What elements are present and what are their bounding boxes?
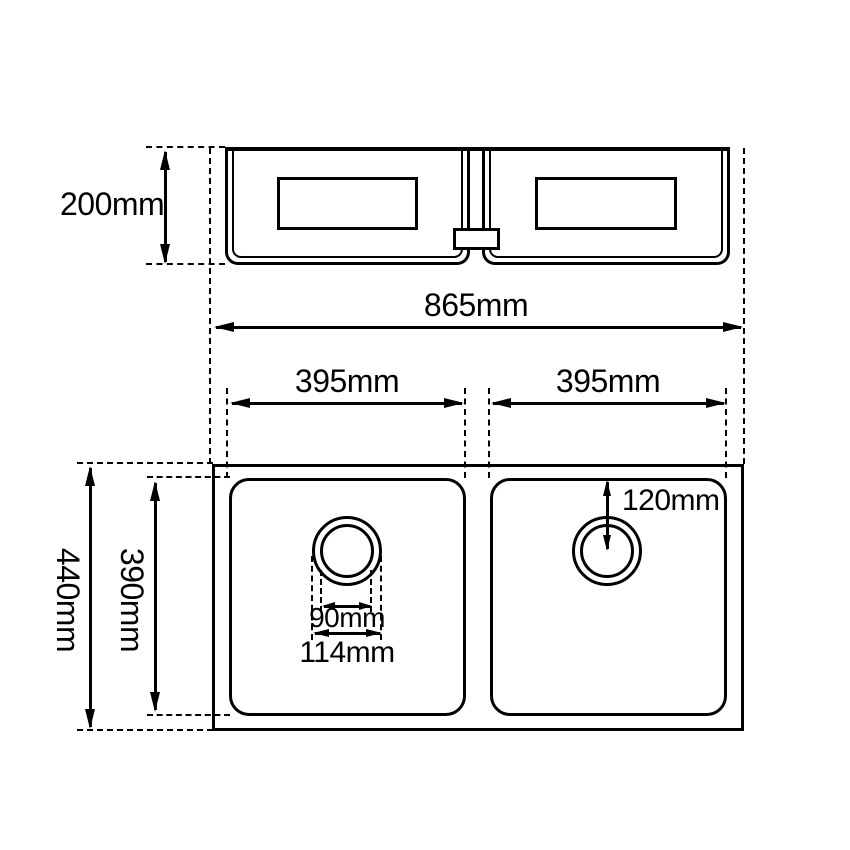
arrowhead-up-icon xyxy=(150,481,160,501)
dim-label-395mm-left: 395mm xyxy=(267,365,427,397)
dim-label-90mm: 90mm xyxy=(287,604,407,632)
side-left-bowl-panel xyxy=(277,177,418,230)
dim-arrow-865mm xyxy=(214,322,743,332)
dim-arrow-120mm xyxy=(602,480,612,551)
side-right-bowl-panel xyxy=(535,177,677,230)
arrowhead-up-icon xyxy=(85,466,95,486)
dim-label-395mm-right: 395mm xyxy=(528,365,688,397)
arrow-shaft xyxy=(154,483,157,710)
sink-rim-line xyxy=(225,147,730,151)
dim-label-865mm: 865mm xyxy=(396,289,556,321)
arrowhead-right-icon xyxy=(444,398,464,408)
center-drain-fitting xyxy=(453,228,500,250)
dim-label-200mm: 200mm xyxy=(60,188,160,220)
dim-label-390mm: 390mm xyxy=(116,545,148,655)
arrowhead-left-icon xyxy=(230,398,250,408)
arrowhead-right-icon xyxy=(723,322,743,332)
arrowhead-right-icon xyxy=(706,398,726,408)
arrowhead-down-icon xyxy=(160,244,170,264)
dim-arrow-395mm-left xyxy=(230,398,464,408)
dim-arrow-440mm xyxy=(85,466,95,729)
arrowhead-down-icon xyxy=(150,692,160,712)
dim-label-120mm: 120mm xyxy=(622,486,752,516)
arrow-shaft xyxy=(232,402,462,405)
arrow-shaft xyxy=(89,468,92,727)
arrowhead-left-icon xyxy=(214,322,234,332)
arrow-shaft xyxy=(216,326,741,329)
arrowhead-down-icon xyxy=(603,535,611,551)
dim-label-440mm: 440mm xyxy=(52,545,84,655)
sink-technical-drawing: 200mm 865mm 395mm 395mm 440mm 390mm 120m… xyxy=(0,0,850,850)
plan-left-bowl xyxy=(229,478,466,716)
arrowhead-up-icon xyxy=(603,480,611,496)
dim-label-114mm: 114mm xyxy=(282,638,412,668)
left-drain-inner-circle xyxy=(320,524,374,578)
arrow-shaft xyxy=(493,402,724,405)
arrowhead-left-icon xyxy=(491,398,511,408)
dim-arrow-395mm-right xyxy=(491,398,726,408)
arrowhead-up-icon xyxy=(160,150,170,170)
dim-arrow-390mm xyxy=(150,481,160,712)
arrowhead-down-icon xyxy=(85,709,95,729)
